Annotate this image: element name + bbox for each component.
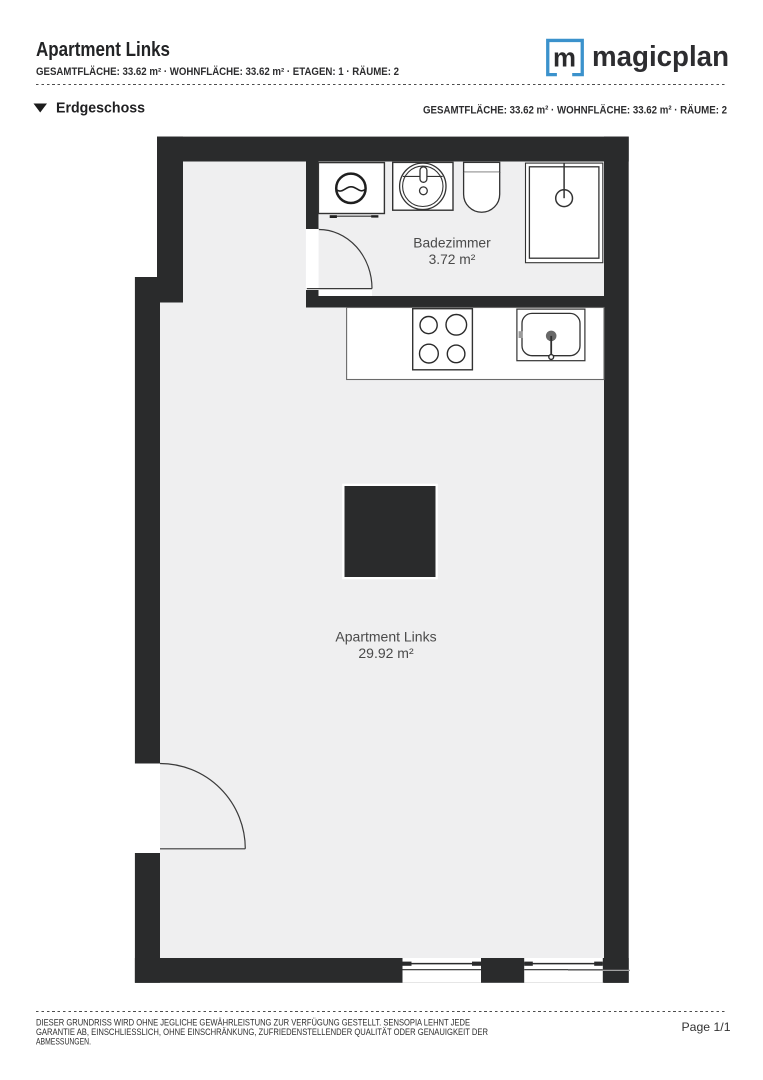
svg-text:GARANTIE AB, EINSCHLIESSLICH,: GARANTIE AB, EINSCHLIESSLICH, OHNE EINSC… [36,1027,488,1037]
svg-text:DIESER GRUNDRISS WIRD OHNE JEG: DIESER GRUNDRISS WIRD OHNE JEGLICHE GEWÄ… [36,1017,470,1027]
svg-text:Apartment Links: Apartment Links [335,629,436,645]
svg-text:Badezimmer: Badezimmer [413,236,491,251]
svg-text:29.92 m²: 29.92 m² [358,645,414,661]
svg-text:3.72 m²: 3.72 m² [429,252,476,267]
svg-text:Page 1/1: Page 1/1 [682,1020,731,1034]
svg-text:ABMESSUNGEN.: ABMESSUNGEN. [36,1036,91,1046]
